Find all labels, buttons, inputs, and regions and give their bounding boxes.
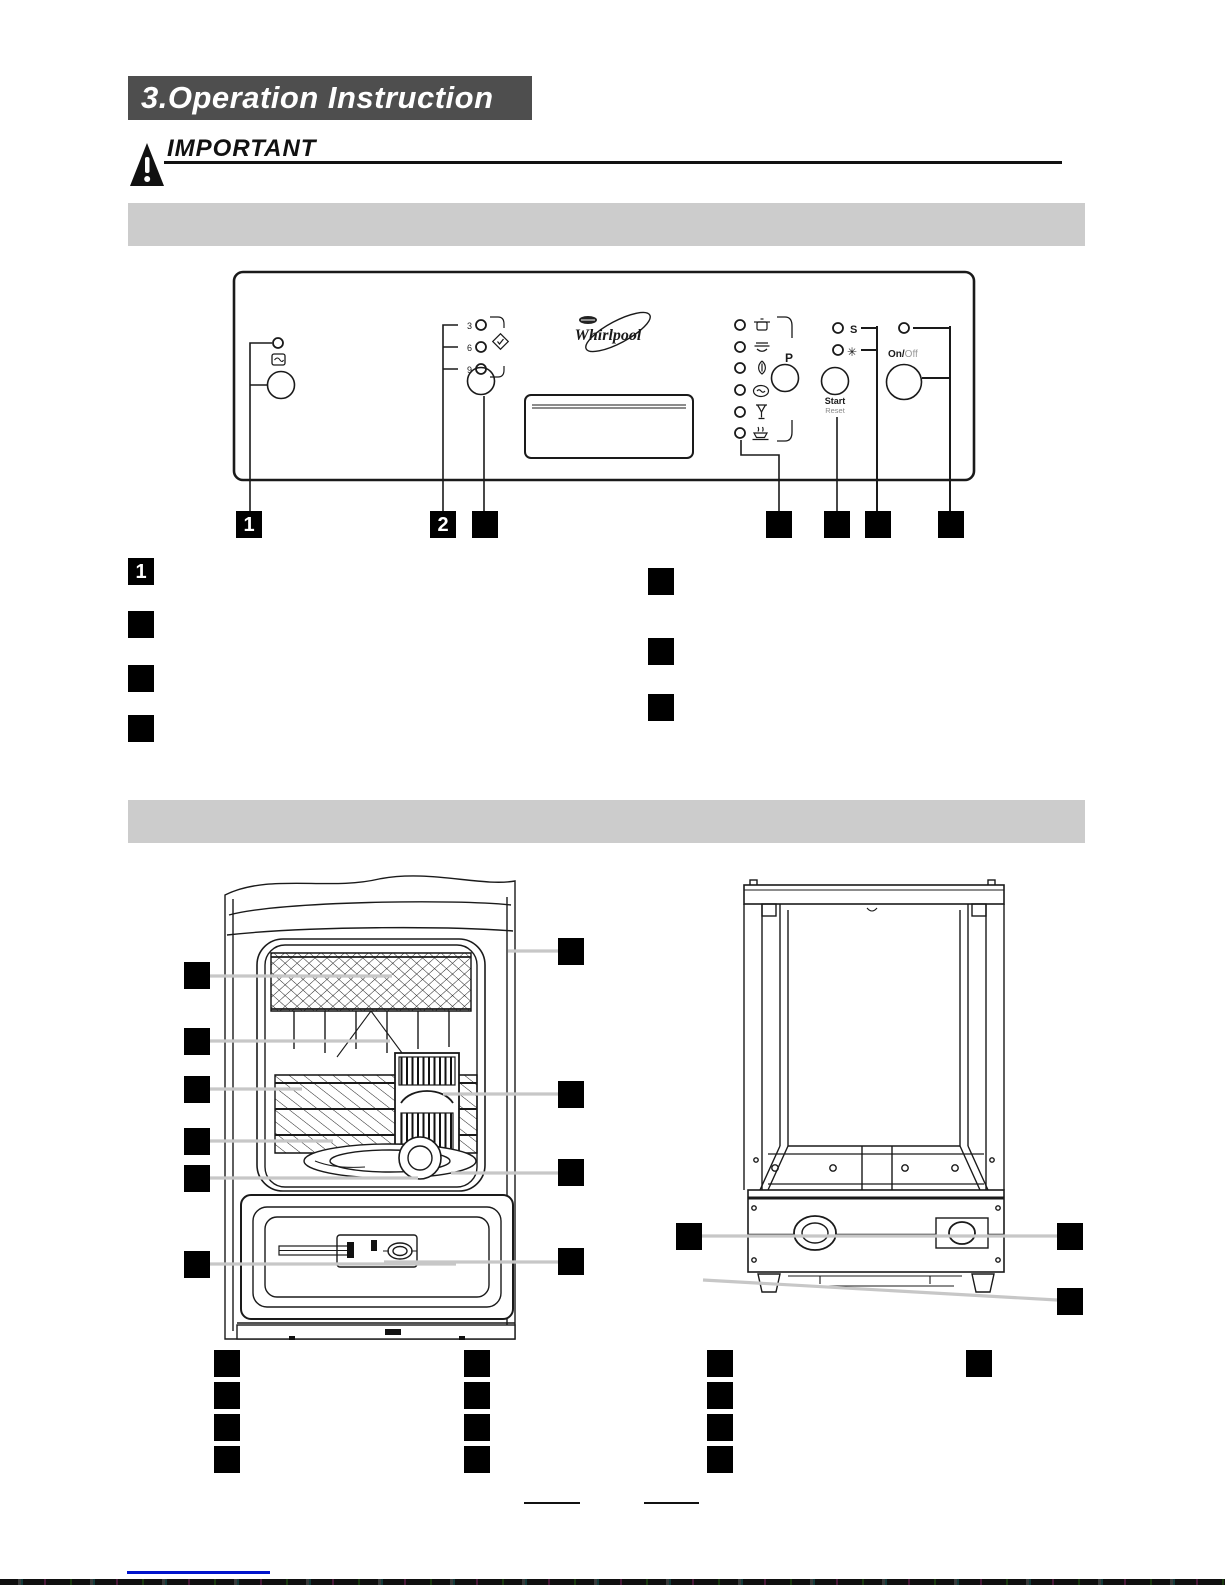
intensive-pot-icon bbox=[754, 319, 770, 330]
bottom-tray bbox=[788, 1276, 962, 1286]
legend-right-3 bbox=[648, 694, 674, 721]
legend-right-2 bbox=[648, 638, 674, 665]
normal-plates-icon bbox=[755, 343, 770, 351]
front-callout-right-2 bbox=[558, 1081, 584, 1108]
front-callout-right-4 bbox=[558, 1248, 584, 1275]
on-off-button bbox=[887, 365, 922, 400]
bottom-col3-1 bbox=[707, 1350, 733, 1377]
brand-logo: Whirlpool bbox=[575, 305, 655, 358]
link-underline[interactable] bbox=[127, 1571, 270, 1574]
delay-group: 3 6 9 bbox=[443, 317, 508, 511]
delay-9h-led bbox=[476, 364, 486, 374]
legend-left-2 bbox=[128, 611, 154, 638]
program-button bbox=[772, 365, 799, 392]
program-5-led bbox=[735, 407, 745, 417]
start-group: S ✳ Start Reset bbox=[822, 323, 878, 511]
side-channels bbox=[744, 904, 1004, 1190]
program-2-led bbox=[735, 342, 745, 352]
panel-outline bbox=[234, 272, 974, 480]
program-3-led bbox=[735, 363, 745, 373]
half-load-button bbox=[268, 372, 295, 399]
soak-icon bbox=[754, 386, 769, 397]
half-load-icon bbox=[272, 354, 285, 365]
important-heading: IMPORTANT bbox=[167, 135, 316, 163]
door-handle-recess bbox=[525, 395, 693, 458]
reset-label: Reset bbox=[825, 406, 846, 415]
legend-right-1 bbox=[648, 568, 674, 595]
delay-6h-label: 6 bbox=[467, 343, 472, 353]
bottom-col3-4 bbox=[707, 1446, 733, 1473]
callout-panel-6 bbox=[865, 511, 891, 538]
on-off-label: On/Off bbox=[888, 349, 918, 360]
page-title: 3.Operation Instruction bbox=[128, 76, 532, 120]
feet bbox=[758, 1274, 994, 1292]
rinse-aid-icon: ✳ bbox=[847, 345, 857, 359]
callout-panel-4 bbox=[766, 511, 792, 538]
dishwasher-rear-view bbox=[740, 878, 1012, 1308]
front-callout-left-6 bbox=[184, 1251, 210, 1278]
dishwasher-front-view bbox=[219, 861, 521, 1347]
base-plinth bbox=[237, 1323, 515, 1340]
bottom-col1-4 bbox=[214, 1446, 240, 1473]
callout-panel-7 bbox=[938, 511, 964, 538]
rear-callout-right-2 bbox=[1057, 1288, 1083, 1315]
callout-panel-3 bbox=[472, 511, 498, 538]
on-off-led bbox=[899, 323, 909, 333]
eco-icon bbox=[759, 361, 766, 374]
front-callout-left-4 bbox=[184, 1128, 210, 1155]
callout-panel-5 bbox=[824, 511, 850, 538]
bottom-col4-1 bbox=[966, 1350, 992, 1377]
front-callout-right-1 bbox=[558, 938, 584, 965]
start-reset-button bbox=[822, 368, 849, 395]
salt-refill-led bbox=[833, 323, 843, 333]
rinse-aid-led bbox=[833, 345, 843, 355]
rapid-icon bbox=[753, 427, 769, 440]
top-cap bbox=[744, 880, 1004, 904]
screw-band bbox=[754, 1154, 994, 1184]
bottom-col1-3 bbox=[214, 1414, 240, 1441]
bottom-col2-1 bbox=[464, 1350, 490, 1377]
half-load-led bbox=[273, 338, 283, 348]
bottom-col2-2 bbox=[464, 1382, 490, 1409]
bottom-col3-2 bbox=[707, 1382, 733, 1409]
back-opening bbox=[760, 904, 988, 1190]
glass-icon bbox=[756, 405, 767, 419]
program-6-led bbox=[735, 428, 745, 438]
callout-panel-1: 1 bbox=[236, 511, 262, 538]
section-heading-bar-1 bbox=[128, 203, 1085, 246]
front-callout-left-3 bbox=[184, 1076, 210, 1103]
on-off-group: On/Off bbox=[887, 323, 951, 511]
start-label: Start bbox=[825, 396, 846, 406]
upper-rack bbox=[271, 953, 471, 1011]
legend-left-3 bbox=[128, 665, 154, 692]
bottom-col3-3 bbox=[707, 1414, 733, 1441]
program-selector-label: P bbox=[785, 351, 793, 365]
program-group: P bbox=[735, 317, 799, 512]
rear-callout-right-1 bbox=[1057, 1223, 1083, 1250]
legend-left-4 bbox=[128, 715, 154, 742]
scan-noise-strip bbox=[0, 1579, 1225, 1585]
bottom-col1-1 bbox=[214, 1350, 240, 1377]
legend-left-1: 1 bbox=[128, 558, 154, 585]
water-inlet bbox=[794, 1216, 836, 1250]
delay-3h-label: 3 bbox=[467, 321, 472, 331]
half-load-option-group bbox=[250, 338, 295, 511]
delay-3h-led bbox=[476, 320, 486, 330]
front-callout-left-5 bbox=[184, 1165, 210, 1192]
control-panel-diagram: 3 6 9 Whirlpool bbox=[232, 270, 976, 512]
front-callout-left-2 bbox=[184, 1028, 210, 1055]
blank-line-1 bbox=[524, 1502, 580, 1504]
rear-callout-left bbox=[676, 1223, 702, 1250]
delay-diamond-check-icon bbox=[493, 334, 509, 350]
warning-icon bbox=[129, 141, 165, 188]
front-callout-right-3 bbox=[558, 1159, 584, 1186]
delay-button bbox=[468, 368, 495, 395]
manual-page: 3.Operation Instruction IMPORTANT 3 6 9 bbox=[0, 0, 1225, 1585]
callout-panel-2: 2 bbox=[430, 511, 456, 538]
bottom-col2-3 bbox=[464, 1414, 490, 1441]
front-callout-left-1 bbox=[184, 962, 210, 989]
delay-6h-led bbox=[476, 342, 486, 352]
section-heading-bar-2 bbox=[128, 800, 1085, 843]
bottom-col1-2 bbox=[214, 1382, 240, 1409]
drain-connector bbox=[936, 1218, 988, 1248]
important-underline bbox=[164, 161, 1062, 164]
program-4-led bbox=[735, 385, 745, 395]
brand-name: Whirlpool bbox=[575, 327, 642, 344]
bottom-col2-4 bbox=[464, 1446, 490, 1473]
program-group-connector bbox=[741, 440, 779, 512]
blank-line-2 bbox=[644, 1502, 699, 1504]
salt-refill-icon: S bbox=[850, 324, 857, 336]
program-1-led bbox=[735, 320, 745, 330]
